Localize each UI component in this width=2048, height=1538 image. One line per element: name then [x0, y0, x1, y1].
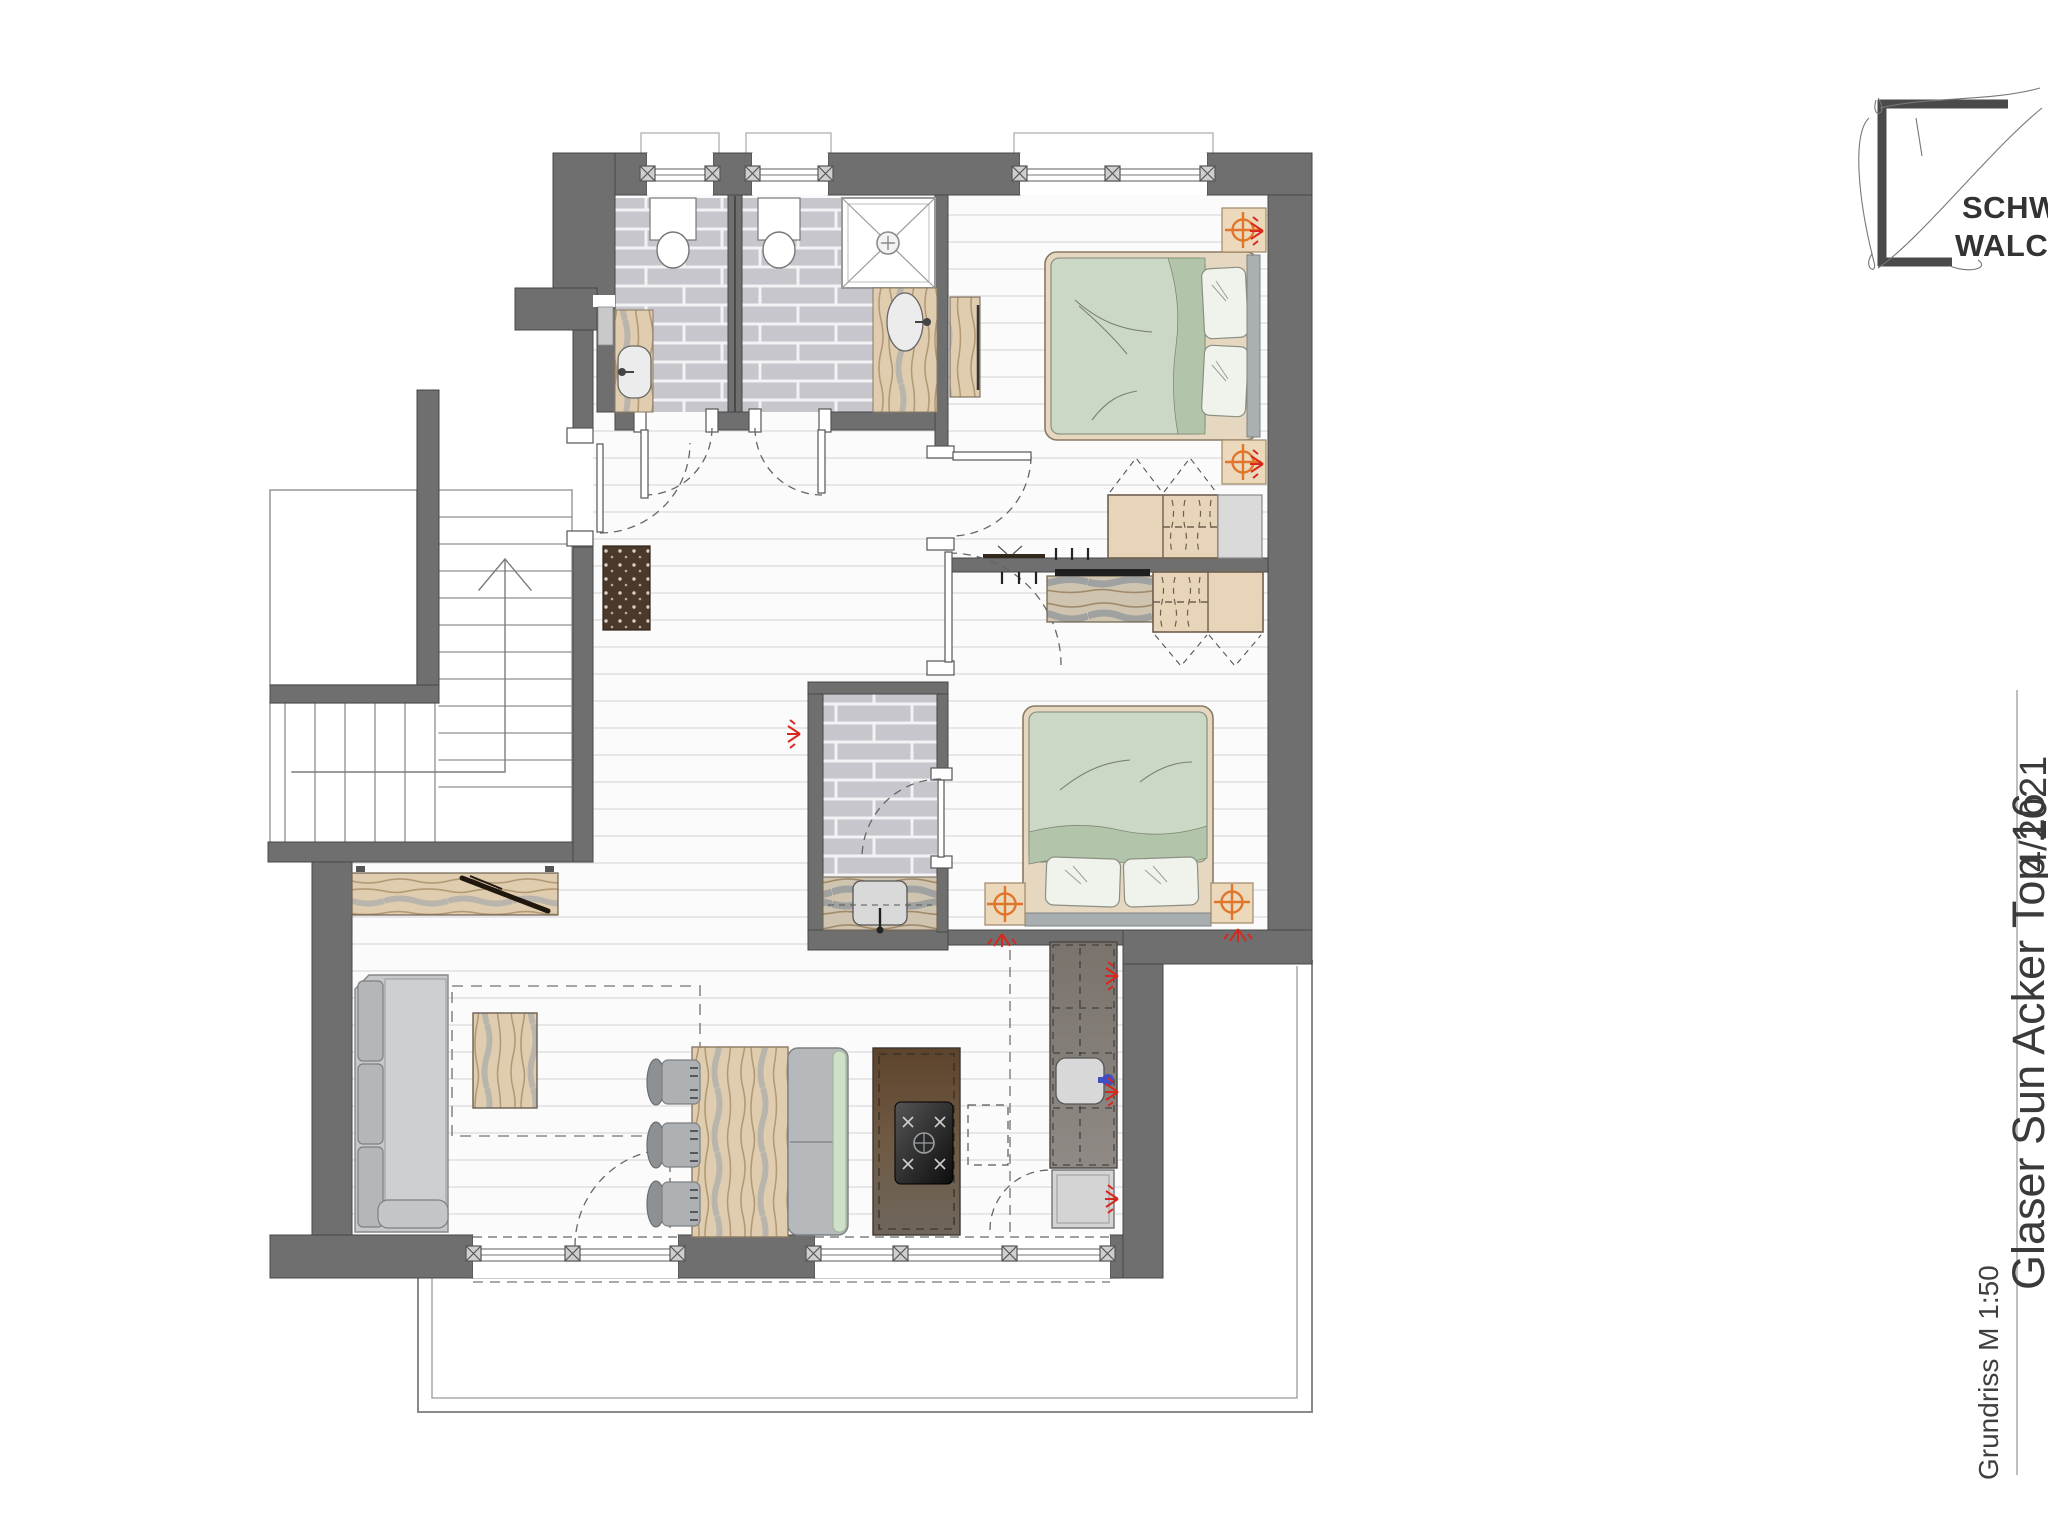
project-suffix: 4/2021 — [2013, 756, 2048, 872]
tv-icon — [1055, 569, 1150, 576]
toilet-bowl — [763, 232, 795, 268]
entry-bench — [352, 873, 558, 915]
shower — [842, 198, 935, 288]
wall-right — [1268, 195, 1312, 962]
dining-chairs — [647, 1059, 700, 1227]
dining-area — [647, 1047, 848, 1237]
wall-kitchen-right — [1123, 964, 1163, 1278]
window-top-2 — [745, 153, 833, 195]
logo-text-line2: WALCH — [1955, 228, 2048, 263]
installation-shaft — [603, 546, 650, 630]
kitchen-island — [873, 1048, 960, 1235]
wall-left-living — [312, 862, 352, 1235]
headboard — [1247, 255, 1260, 437]
window-top-1 — [640, 153, 720, 195]
sofa — [355, 975, 448, 1232]
floorplan-sheet: SCHWA WALCH Glaser Sun Acker Top 16 4/20… — [0, 0, 2048, 1538]
dining-bench — [788, 1048, 848, 1235]
window-bedroom-top — [1012, 153, 1215, 195]
toilet-bowl — [657, 232, 689, 268]
duct — [598, 307, 613, 345]
faucet-icon — [877, 927, 884, 934]
double-bed — [1023, 706, 1213, 926]
drawing-scale-label: Grundriss M 1:50 — [1973, 1265, 2004, 1480]
window-dining — [806, 1235, 1115, 1278]
appliance — [1052, 1170, 1114, 1228]
title-block: SCHWA WALCH — [1859, 88, 2048, 270]
sideboard — [950, 297, 980, 397]
wall-niche — [593, 295, 615, 307]
entry-area — [352, 866, 558, 915]
stairwell-void — [270, 490, 417, 685]
dining-table — [692, 1047, 788, 1237]
kitchen-sink — [1056, 1058, 1104, 1104]
sofa-armrest — [378, 1200, 448, 1228]
floorplan-drawing: SCHWA WALCH Glaser Sun Acker Top 16 4/20… — [0, 0, 2048, 1538]
headboard — [1025, 913, 1211, 926]
wall-chimney — [515, 288, 597, 330]
coffee-table — [473, 1013, 537, 1108]
logo-text-line1: SCHWA — [1962, 190, 2048, 225]
tv-sideboard — [1047, 576, 1153, 622]
wall-stair — [417, 390, 439, 703]
side-annotations: Glaser Sun Acker Top 16 4/2021 Grundriss… — [1973, 690, 2048, 1480]
double-bed — [1045, 252, 1260, 440]
